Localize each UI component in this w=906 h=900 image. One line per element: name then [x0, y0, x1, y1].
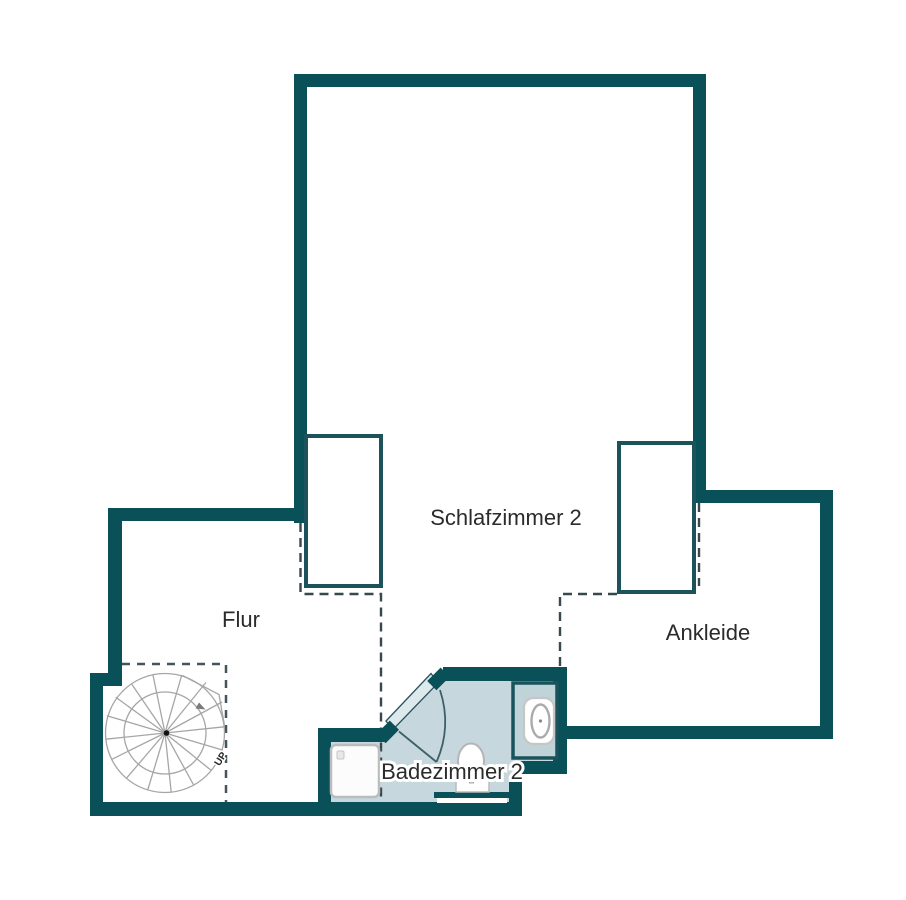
svg-text:Ankleide: Ankleide	[666, 620, 750, 645]
svg-text:Badezimmer 2: Badezimmer 2	[381, 759, 523, 784]
svg-text:Flur: Flur	[222, 607, 260, 632]
svg-text:Schlafzimmer 2: Schlafzimmer 2	[430, 505, 582, 530]
